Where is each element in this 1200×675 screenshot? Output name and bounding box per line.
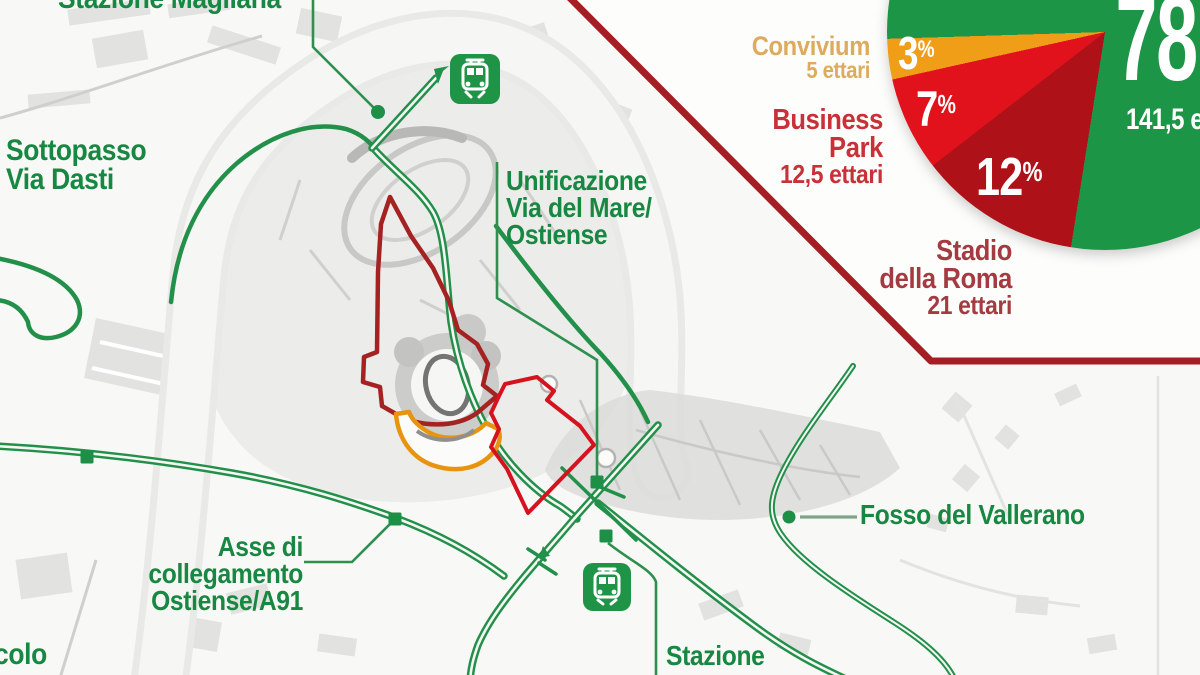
label-unificazione: Unificazione Via del Mare/ Ostiense bbox=[506, 167, 652, 248]
label-fosso-vallerano: Fosso del Vallerano bbox=[860, 501, 1085, 528]
label-sottopasso: Sottopasso Via Dasti bbox=[6, 136, 146, 194]
slice-percent-stadio: 12% bbox=[976, 150, 1042, 204]
label-fragment-bottom-left: colo bbox=[0, 640, 47, 669]
label-stazione-bottom: Stazione Tor di Valle bbox=[666, 640, 791, 675]
label-stazione-magliana: Stazione Magliana bbox=[58, 0, 281, 13]
infographic-canvas: 3% 7% 12% 78 141,5 ettari Convivium 5 et… bbox=[0, 0, 1200, 675]
slice-percent-convivium: 3% bbox=[898, 30, 935, 76]
legend-convivium: Convivium 5 ettari bbox=[681, 33, 870, 81]
green-slice-area: 141,5 ettari bbox=[1126, 103, 1200, 137]
legend-business-park: Business Park 12,5 ettari bbox=[682, 106, 883, 187]
legend-stadio: Stadio della Roma 21 ettari bbox=[836, 237, 1012, 318]
slice-percent-business: 7% bbox=[916, 84, 956, 134]
slice-percent-green: 78 bbox=[1075, 0, 1197, 94]
label-asse-collegamento: Asse di collegamento Ostiense/A91 bbox=[89, 533, 303, 614]
